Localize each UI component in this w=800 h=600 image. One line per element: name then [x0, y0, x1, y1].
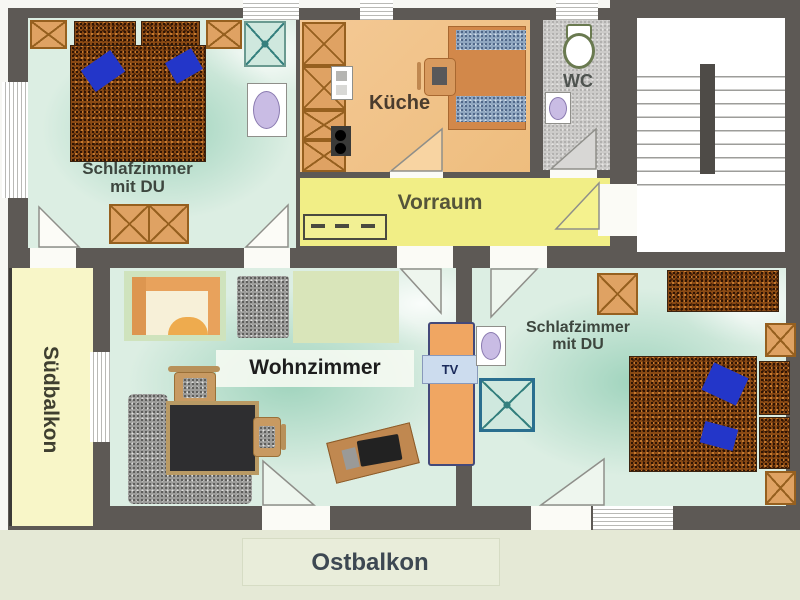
chair-icon — [253, 417, 281, 457]
shower-icon — [244, 21, 286, 67]
tv-label-text: TV — [442, 362, 459, 377]
door-swing-bedroom-right-balcony — [540, 458, 605, 506]
console-icon — [303, 214, 387, 240]
kitchen-sink-icon — [331, 66, 353, 100]
wardrobe-icon — [30, 20, 67, 49]
bench-icon — [456, 96, 526, 122]
armchair-icon — [237, 276, 289, 338]
chair-back-icon — [168, 366, 220, 372]
door-swing-bedroom-right-top — [490, 268, 538, 318]
nightstand-icon — [759, 361, 790, 415]
pillow-icon — [81, 50, 125, 92]
window-top-2 — [360, 0, 393, 20]
pillow-icon — [700, 421, 739, 451]
side-table-icon — [765, 471, 796, 505]
door-gap-hall-living — [397, 246, 453, 268]
window-left-bedroom — [2, 82, 28, 198]
dresser-icon — [109, 204, 187, 244]
chair-icon — [424, 58, 456, 96]
door-swing-living-balcony — [262, 460, 315, 506]
door-gap-bedroom-right-balcony — [531, 506, 591, 530]
stove-icon — [331, 126, 351, 156]
chair-back-icon — [417, 62, 421, 90]
room-label-line2: mit DU — [40, 178, 235, 196]
chair-icon — [174, 372, 216, 404]
room-label-east-balcony: Ostbalkon — [250, 550, 490, 575]
wardrobe-icon — [597, 273, 638, 315]
rug-icon — [667, 270, 779, 312]
door-swing-living-top — [400, 268, 442, 314]
door-gap-living-balcony — [262, 506, 330, 530]
room-label-line1: Schlafzimmer — [40, 160, 235, 178]
room-label-hallway: Vorraum — [350, 192, 530, 214]
window-bottom-bedroom-right — [593, 506, 673, 530]
door-swing-wc — [550, 128, 597, 170]
door-swing-bedroom-left-1 — [38, 206, 80, 248]
window-south-balcony — [90, 352, 110, 442]
room-label-south-balcony: Südbalkon — [30, 300, 70, 500]
pillow-icon — [701, 362, 748, 405]
shower-icon — [479, 378, 535, 432]
double-bed-icon — [70, 45, 206, 162]
door-gap-hall-bedroom-right — [490, 246, 547, 268]
room-label-wc: WC — [556, 72, 600, 91]
door-gap-entrance — [598, 184, 637, 236]
pillow-icon — [165, 48, 203, 84]
window-top-wc — [556, 0, 598, 20]
room-label-bedroom-left: Schlafzimmer mit DU — [40, 160, 235, 196]
rug-icon — [293, 271, 399, 343]
wardrobe-icon — [206, 20, 242, 49]
floor-plan: Schlafzimmer mit DU Küche WC Vorraum — [0, 0, 800, 600]
side-table-icon — [765, 323, 796, 357]
chair-back-icon — [281, 424, 286, 450]
room-label-living: Wohnzimmer — [218, 357, 412, 379]
nightstand-icon — [74, 21, 136, 48]
tv-cabinet-icon — [428, 322, 475, 466]
tiled-stove-icon — [124, 271, 226, 341]
door-swing-entrance — [555, 182, 600, 230]
nightstand-icon — [759, 417, 790, 469]
double-bed-icon — [629, 356, 757, 472]
sink-icon — [545, 92, 571, 124]
nightstand-icon — [141, 21, 200, 48]
door-swing-bedroom-left-2 — [245, 204, 289, 248]
stair-divider — [700, 64, 715, 174]
bench-icon — [456, 30, 526, 50]
door-swing-kitchen — [390, 128, 443, 172]
room-label-kitchen: Küche — [352, 93, 447, 114]
room-label-line2: mit DU — [488, 337, 668, 354]
sink-icon — [247, 83, 287, 137]
room-label-bedroom-right: Schlafzimmer mit DU — [488, 320, 668, 354]
window-top-1 — [243, 0, 299, 20]
door-gap-bedroom-left-balcony — [30, 248, 76, 268]
room-label-line1: Schlafzimmer — [488, 320, 668, 337]
staircase — [637, 18, 785, 252]
tv-label: TV — [422, 355, 478, 384]
door-gap-bedroom-left-living — [244, 248, 290, 268]
living-table-icon — [166, 401, 259, 475]
toilet-icon — [556, 24, 598, 72]
